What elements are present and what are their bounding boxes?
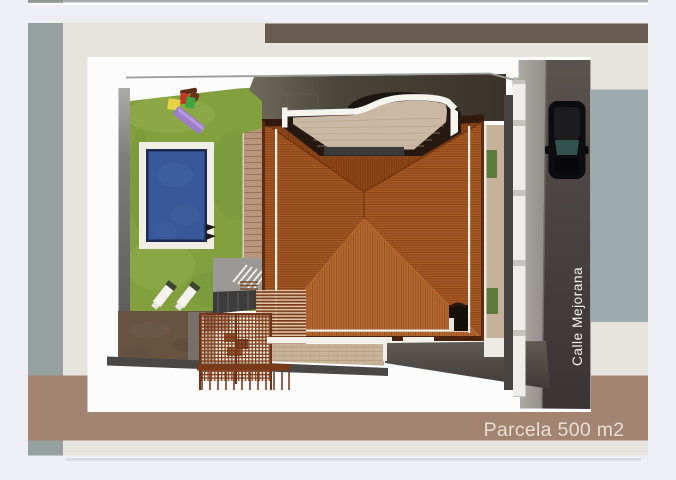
svg-text:Calle Mejorana: Calle Mejorana bbox=[570, 267, 585, 366]
svg-text:Parcela 500 m2: Parcela 500 m2 bbox=[484, 419, 625, 441]
